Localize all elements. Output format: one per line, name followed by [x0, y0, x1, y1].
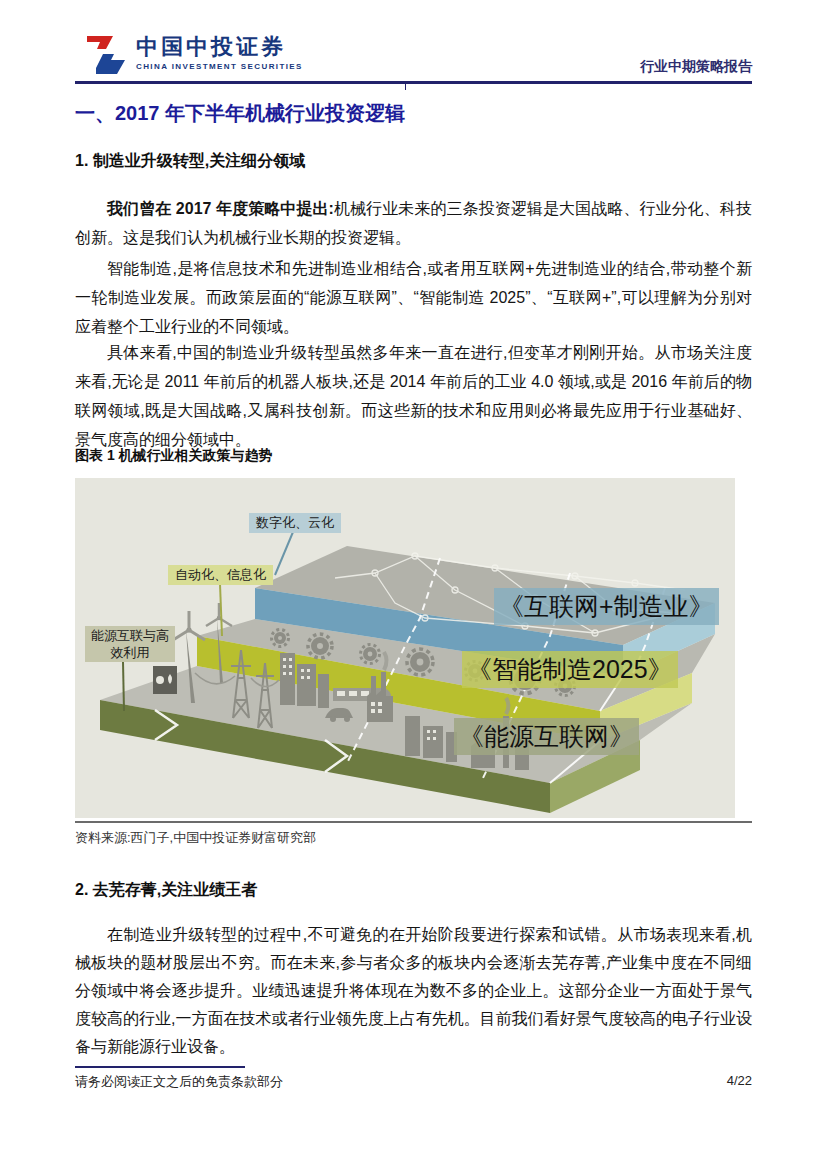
header-rule-notch: [405, 81, 406, 90]
disclaimer: 请务必阅读正文之后的免责条款部分: [75, 1073, 283, 1091]
band-energy-internet: 《能源互联网》: [454, 718, 639, 755]
callout-energy-line1: 能源互联与高: [88, 627, 172, 644]
gas-icon: [153, 666, 177, 694]
callout-digital: 数字化、云化: [249, 513, 341, 533]
paragraph-3: 具体来看,中国的制造业升级转型虽然多年来一直在进行,但变革才刚刚开始。从市场关注…: [75, 338, 752, 454]
footer-rule: [75, 1066, 245, 1068]
figure-bottom-rule: [75, 821, 752, 823]
paragraph-2: 智能制造,是将信息技术和先进制造业相结合,或者用互联网+先进制造业的结合,带动整…: [75, 254, 752, 341]
header-rule: [75, 81, 752, 84]
logo-title: 中国中投证券: [136, 35, 303, 59]
paragraph-1-lead: 我们曾在 2017 年度策略中提出:: [107, 200, 334, 217]
section-1-heading: 1. 制造业升级转型,关注细分领域: [75, 151, 752, 172]
band-internet-manufacturing: 《互联网+制造业》: [494, 588, 719, 625]
figure-caption: 图表 1 机械行业相关政策与趋势: [75, 447, 273, 465]
paragraph-1: 我们曾在 2017 年度策略中提出:机械行业未来的三条投资逻辑是大国战略、行业分…: [75, 194, 752, 252]
section-2-heading: 2. 去芜存菁,关注业绩王者: [75, 880, 752, 901]
callout-energy-line2: 效利用: [88, 644, 172, 661]
report-page: 中国中投证券 CHINA INVESTMENT SECURITIES 行业中期策…: [0, 0, 827, 1169]
paragraph-4: 在制造业升级转型的过程中,不可避免的在开始阶段要进行探索和试错。从市场表现来看,…: [75, 921, 752, 1061]
callout-energy-efficiency: 能源互联与高 效利用: [85, 626, 175, 662]
figure-diagram: 数字化、云化 自动化、信息化 能源互联与高 效利用 《互联网+制造业》 《智能制…: [75, 478, 735, 818]
report-type-label: 行业中期策略报告: [640, 58, 752, 76]
page-title: 一、2017 年下半年机械行业投资逻辑: [75, 100, 752, 127]
logo-subtitle: CHINA INVESTMENT SECURITIES: [136, 62, 303, 71]
callout-automation: 自动化、信息化: [168, 565, 273, 585]
logo-mark-icon: [84, 32, 130, 78]
band-smart-manufacturing-2025: 《智能制造2025》: [462, 651, 678, 688]
page-number: 4/22: [727, 1073, 752, 1088]
source-note: 资料来源:西门子,中国中投证券财富研究部: [75, 829, 316, 847]
header-logo: 中国中投证券 CHINA INVESTMENT SECURITIES: [136, 35, 303, 71]
